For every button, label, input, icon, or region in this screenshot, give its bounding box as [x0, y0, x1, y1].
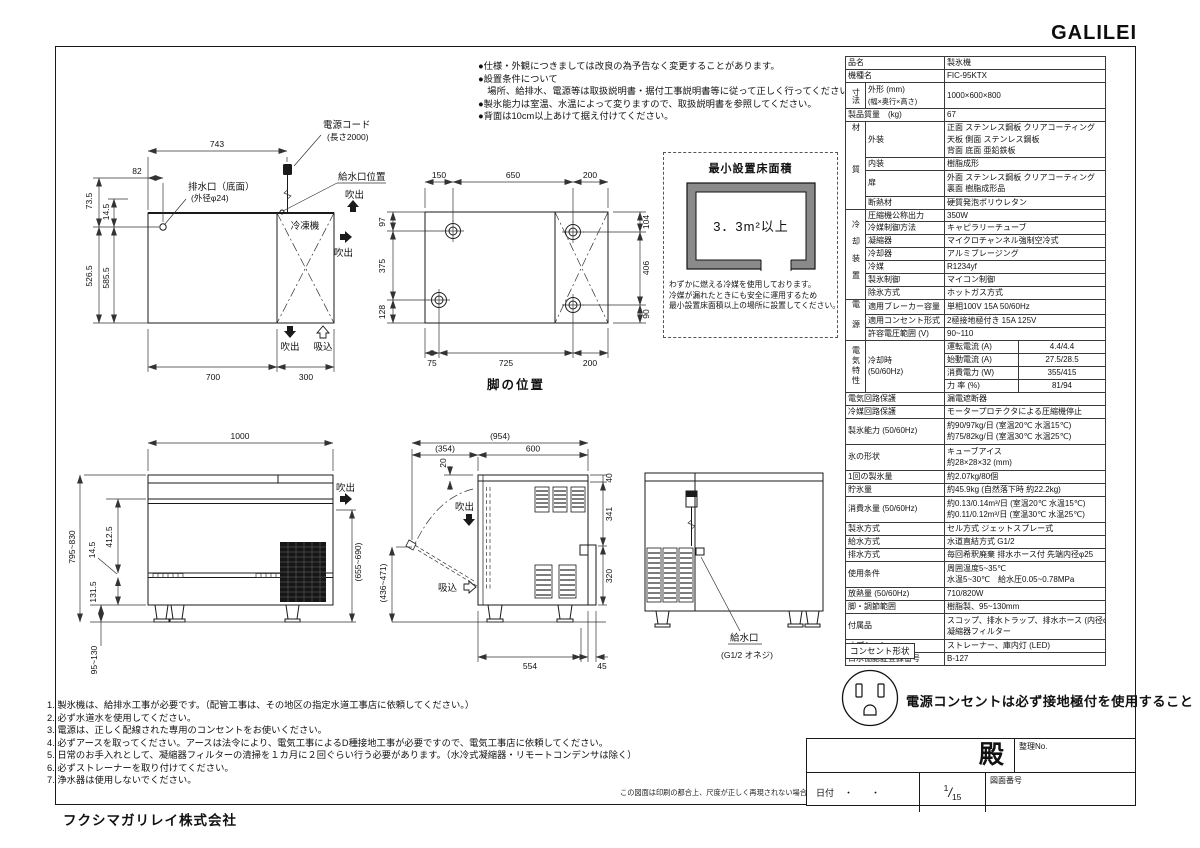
spec-row: 冷媒回路保護モータープロテクタによる圧縮機停止: [846, 405, 1106, 418]
dim-341: 341: [604, 507, 614, 521]
blow-label: 吹出: [280, 341, 299, 353]
inlet-position-label: 給水口位置: [338, 171, 386, 183]
dim-150: 150: [432, 170, 446, 180]
spec-value: B-127: [945, 652, 1106, 665]
spec-value: モータープロテクタによる圧縮機停止: [945, 405, 1106, 418]
note-line: ●仕様・外観につきましては改良の為予告なく変更することがあります。: [478, 60, 840, 73]
blow-label: 吹出: [336, 482, 355, 494]
spec-value: 樹脂製、95~130mm: [945, 600, 1106, 613]
dim-200-bottom: 200: [583, 358, 597, 368]
outlet-warning-text: 電源コンセントは必ず接地極付を使用すること: [906, 691, 1193, 710]
dim-554: 554: [523, 661, 537, 671]
dim-650: 650: [506, 170, 520, 180]
spec-value: 1000×600×800: [945, 83, 1106, 109]
drawing-side-view: (954) (354) 600 20 40 341 320 (436~471) …: [378, 431, 614, 671]
spec-sublabel: 始動電流 (A): [945, 353, 1019, 366]
drawing-leg-positions: 150 650 200 104 406 90 97 375 128 75 725…: [377, 170, 651, 392]
dim-300: 300: [299, 372, 313, 382]
spec-row: 放熱量 (50/60Hz)710/820W: [846, 587, 1106, 600]
spec-label: 品名: [846, 57, 945, 70]
spec-label: 適用ブレーカー容量: [866, 300, 945, 315]
spec-value: セル方式 ジェットスプレー式: [945, 522, 1106, 535]
spec-value: 単相100V 15A 50/60Hz: [945, 300, 1106, 315]
room-glyph: 3．3m²以上: [685, 181, 817, 273]
spec-value: マイコン制御: [945, 274, 1106, 287]
spec-value: 漏電遮断器: [945, 392, 1106, 405]
spec-value: 約0.13/0.14m³/日 (室温20℃ 水温15℃)約0.11/0.12m³…: [945, 496, 1106, 522]
date-cell: 日付 ・ ・: [807, 773, 920, 812]
spec-label: 凝縮器: [866, 235, 945, 248]
water-inlet-label: 給水口: [730, 632, 759, 644]
spec-value: 約45.9kg (自然落下時 約22.2kg): [945, 483, 1106, 496]
spec-row: 付属品スコップ、排水トラップ、排水ホース (内径φ25)凝縮器フィルター: [846, 613, 1106, 639]
dim-412-5: 412.5: [104, 526, 114, 548]
spec-value: ホットガス方式: [945, 287, 1106, 300]
spec-label: 1回の製氷量: [846, 470, 945, 483]
dim-436-471: (436~471): [378, 563, 388, 602]
dim-131-5: 131.5: [88, 581, 98, 603]
spec-label: 電気回路保護: [846, 392, 945, 405]
spec-sublabel: 運転電流 (A): [945, 341, 1019, 354]
note-line: 5. 日常のお手入れとして、凝縮器フィルターの清掃を１カ月に２回ぐらい行う必要が…: [47, 749, 807, 762]
spec-label: 氷の形状: [846, 444, 945, 470]
dim-14-5-front: 14.5: [87, 541, 97, 558]
note-line: 6. 必ずストレーナーを取り付けてください。: [47, 762, 807, 775]
spec-label: 扉: [866, 170, 945, 196]
spec-row: 脚・調節範囲樹脂製、95~130mm: [846, 600, 1106, 613]
drawing-top-view: 排水口（底面） (外径φ24) 電源コード (長さ2000) 給水口位置 冷凍機…: [84, 120, 386, 382]
note-line: 1. 製氷機は、給排水工事が必要です。（配管工事は、その地区の指定水道工事店に依…: [47, 699, 807, 712]
spec-value: 90~110: [945, 328, 1106, 341]
spec-row: 消費水量 (50/60Hz)約0.13/0.14m³/日 (室温20℃ 水温15…: [846, 496, 1106, 522]
brand-logo: GALILEI: [1038, 22, 1137, 45]
freezer-label: 冷凍機: [291, 220, 320, 232]
min-area-note: 最小設置床面積以上の場所に設置してください。: [669, 301, 832, 312]
spec-value: 水道直結方式 G1/2: [945, 535, 1106, 548]
dim-1000: 1000: [231, 431, 250, 441]
spec-row: 電気特性 冷却時(50/60Hz) 運転電流 (A)4.4/4.4: [846, 341, 1106, 354]
suction-label: 吸込: [438, 583, 458, 594]
blow-label: 吹出: [345, 189, 364, 201]
drain-label: 排水口（底面）: [188, 181, 255, 193]
dim-655-690: (655~690): [353, 542, 363, 581]
spec-row: 断熱材硬質発泡ポリウレタン: [846, 196, 1106, 209]
dim-375: 375: [377, 259, 387, 273]
dim-40: 40: [604, 473, 614, 483]
dim-97: 97: [377, 217, 387, 227]
min-floor-area-box: 最小設置床面積 3．3m²以上 わずかに燃える冷媒を使用しております。 冷媒が漏…: [663, 152, 838, 338]
spec-label: 外形 (mm)(幅×奥行×高さ): [866, 83, 945, 109]
spec-group: 寸法: [846, 83, 866, 109]
water-inlet-thread-label: (G1/2 オネジ): [721, 650, 773, 660]
spec-value: 外面 ステンレス鋼板 クリアコーティング裏面 樹脂成形品: [945, 170, 1106, 196]
blow-label: 吹出: [334, 247, 353, 259]
spec-label: 冷媒回路保護: [846, 405, 945, 418]
spec-row: 製氷方式セル方式 ジェットスプレー式: [846, 522, 1106, 535]
spec-value: R1234yf: [945, 261, 1106, 274]
spec-value: 毎回希釈廃棄 排水ホース付 先端内径φ25: [945, 548, 1106, 561]
min-area-note: わずかに燃える冷媒を使用しております。: [669, 280, 832, 291]
spec-row: 電気回路保護漏電遮断器: [846, 392, 1106, 405]
ref-no-cell: 整理No.: [1015, 739, 1135, 772]
scale-denominator: 15: [952, 792, 961, 802]
min-floor-area-title: 最小設置床面積: [664, 160, 837, 176]
spec-row: 使用条件周囲温度5~35℃水温5~30℃ 給水圧0.05~0.78MPa: [846, 561, 1106, 587]
drawing-front-view: 1000 795~830 412.5 14.5 131.5 95~130 吹出 …: [67, 431, 363, 674]
note-line: 3. 電源は、正しく配線された専用のコンセントをお使いください。: [47, 724, 807, 737]
drain-sub-label: (外径φ24): [191, 193, 229, 203]
dim-73-5: 73.5: [84, 192, 94, 209]
spec-label: 製氷能力 (50/60Hz): [846, 418, 945, 444]
spec-value: キャピラリーチューブ: [945, 222, 1106, 235]
dim-526-5: 526.5: [84, 265, 94, 287]
dim-354: (354): [435, 444, 455, 454]
spec-value: 4.4/4.4: [1019, 341, 1106, 354]
note-line: 場所、給排水、電源等は取扱説明書・据付工事説明書等に従って正しく行ってください。: [478, 85, 840, 98]
dim-height: 795~830: [67, 530, 77, 564]
spec-sublabel: 力 率 (%): [945, 379, 1019, 392]
spec-value: FIC-95KTX: [945, 70, 1106, 83]
spec-row: 許容電圧範囲 (V)90~110: [846, 328, 1106, 341]
spec-label: 脚・調節範囲: [846, 600, 945, 613]
spec-value: 樹脂成形: [945, 157, 1106, 170]
spec-label: 断熱材: [866, 196, 945, 209]
spec-value: 2極接地極付き 15A 125V: [945, 315, 1106, 328]
spec-row: 1回の製氷量約2.07kg/80個: [846, 470, 1106, 483]
date-label: 日付: [816, 786, 834, 799]
dim-leg-range: 95~130: [89, 645, 99, 674]
spec-row: 製品質量 (kg)67: [846, 109, 1106, 122]
spec-label: 適用コンセント形式: [866, 315, 945, 328]
title-block: 殿 整理No. 日付 ・ ・ 1/15 図面番号: [806, 738, 1136, 806]
note-line: 2. 必ず水道水を使用してください。: [47, 712, 807, 725]
spec-row: 寸法 外形 (mm)(幅×奥行×高さ) 1000×600×800: [846, 83, 1106, 109]
cord-sub-label: (長さ2000): [327, 132, 369, 142]
spec-value: 周囲温度5~35℃水温5~30℃ 給水圧0.05~0.78MPa: [945, 561, 1106, 587]
spec-value: 355/415: [1019, 366, 1106, 379]
spec-label: 消費水量 (50/60Hz): [846, 496, 945, 522]
spec-label: 機種名: [846, 70, 945, 83]
dim-320: 320: [604, 569, 614, 583]
spec-row: 貯氷量約45.9kg (自然落下時 約22.2kg): [846, 483, 1106, 496]
spec-value: 約90/97kg/日 (室温20℃ 水温15℃)約75/82kg/日 (室温30…: [945, 418, 1106, 444]
spec-label: 冷却時(50/60Hz): [866, 341, 945, 393]
company-name: フクシマガリレイ株式会社: [63, 809, 237, 829]
cord-label: 電源コード: [323, 120, 371, 131]
spec-value: スコップ、排水トラップ、排水ホース (内径φ25)凝縮器フィルター: [945, 613, 1106, 639]
spec-value: 81/94: [1019, 379, 1106, 392]
spec-value: マイクロチャンネル強制空冷式: [945, 235, 1106, 248]
dim-128: 128: [377, 305, 387, 319]
spec-row: 製氷制御マイコン制御: [846, 274, 1106, 287]
spec-value: ストレーナー、庫内灯 (LED): [945, 639, 1106, 652]
outlet-shape-label: コンセント形状: [845, 643, 915, 659]
spec-label: 製品質量 (kg): [846, 109, 945, 122]
min-floor-area-value: 3．3m²以上: [713, 219, 789, 234]
spec-row: 品名製氷機: [846, 57, 1106, 70]
dim-600: 600: [526, 444, 540, 454]
note-line: ●設置条件について: [478, 73, 840, 86]
dim-104: 104: [641, 215, 651, 229]
spec-value: 約2.07kg/80個: [945, 470, 1106, 483]
spec-label: 圧縮機公称出力: [866, 209, 945, 222]
note-line: 4. 必ずアースを取ってください。アースは法令により、電気工事によるD種接地工事…: [47, 737, 807, 750]
spec-row: 冷却装置 圧縮機公称出力350W: [846, 209, 1106, 222]
spec-row: 冷却器アルミブレージング: [846, 248, 1106, 261]
spec-value: 製氷機: [945, 57, 1106, 70]
spec-row: 冷媒制御方法キャピラリーチューブ: [846, 222, 1106, 235]
spec-label: 外装: [866, 122, 945, 158]
dim-200-top: 200: [583, 170, 597, 180]
spec-row: 冷媒R1234yf: [846, 261, 1106, 274]
dim-585-5: 585.5: [101, 267, 111, 289]
spec-label: 冷媒: [866, 261, 945, 274]
dim-45: 45: [597, 661, 607, 671]
spec-row: 材質 外装 正面 ステンレス鋼板 クリアコーティング天板 側面 ステンレス鋼板背…: [846, 122, 1106, 158]
spec-label: 製氷制御: [866, 274, 945, 287]
spec-label: 冷却器: [866, 248, 945, 261]
scale-cell: 1/15: [920, 773, 986, 812]
spec-label: 除氷方式: [866, 287, 945, 300]
spec-sublabel: 消費電力 (W): [945, 366, 1019, 379]
dim-743: 743: [210, 139, 224, 149]
spec-row: 給水方式水道直結方式 G1/2: [846, 535, 1106, 548]
spec-label: 付属品: [846, 613, 945, 639]
usage-notes: 1. 製氷機は、給排水工事が必要です。（配管工事は、その地区の指定水道工事店に依…: [47, 699, 807, 787]
spec-label: 使用条件: [846, 561, 945, 587]
spec-row: 製氷能力 (50/60Hz)約90/97kg/日 (室温20℃ 水温15℃)約7…: [846, 418, 1106, 444]
dim-90: 90: [641, 309, 651, 319]
dim-75: 75: [427, 358, 437, 368]
spec-label: 貯氷量: [846, 483, 945, 496]
spec-row: 扉外面 ステンレス鋼板 クリアコーティング裏面 樹脂成形品: [846, 170, 1106, 196]
note-line: 7. 浄水器は使用しないでください。: [47, 774, 807, 787]
min-area-note: 冷媒が漏れたときにも安全に運用するため: [669, 291, 832, 302]
spec-row: 電源 適用ブレーカー容量単相100V 15A 50/60Hz: [846, 300, 1106, 315]
spec-row: 内装樹脂成形: [846, 157, 1106, 170]
date-dots: ・ ・: [844, 786, 880, 799]
dim-82: 82: [132, 166, 142, 176]
spec-row: 機種名FIC-95KTX: [846, 70, 1106, 83]
spec-group: 冷却装置: [846, 209, 866, 300]
spec-group: 電源: [846, 300, 866, 341]
leg-view-title: 脚の位置: [487, 377, 545, 392]
spec-value: 硬質発泡ポリウレタン: [945, 196, 1106, 209]
spec-table: 品名製氷機 機種名FIC-95KTX 寸法 外形 (mm)(幅×奥行×高さ) 1…: [845, 56, 1106, 666]
spec-value: キューブアイス約28×28×32 (mm): [945, 444, 1106, 470]
spec-value: 正面 ステンレス鋼板 クリアコーティング天板 側面 ステンレス鋼板背面 底面 亜…: [945, 122, 1106, 158]
spec-group: 材質: [846, 122, 866, 210]
spec-label: 排水方式: [846, 548, 945, 561]
drawing-no-cell: 図面番号: [986, 773, 1135, 812]
suction-label: 吸込: [313, 342, 333, 353]
spec-label: 冷媒制御方法: [866, 222, 945, 235]
dim-954: (954): [490, 431, 510, 441]
spec-value: 67: [945, 109, 1106, 122]
dim-700: 700: [206, 372, 220, 382]
dim-725: 725: [499, 358, 513, 368]
spec-label: 内装: [866, 157, 945, 170]
addressee-cell: 殿: [807, 739, 1015, 772]
spec-row: 氷の形状キューブアイス約28×28×32 (mm): [846, 444, 1106, 470]
spec-label: 製氷方式: [846, 522, 945, 535]
spec-row: 排水方式毎回希釈廃棄 排水ホース付 先端内径φ25: [846, 548, 1106, 561]
spec-value: アルミブレージング: [945, 248, 1106, 261]
spec-label: 放熱量 (50/60Hz): [846, 587, 945, 600]
spec-row: 適用コンセント形式2極接地極付き 15A 125V: [846, 315, 1106, 328]
blow-label: 吹出: [455, 501, 474, 513]
spec-label: 給水方式: [846, 535, 945, 548]
spec-value: 27.5/28.5: [1019, 353, 1106, 366]
dim-20: 20: [438, 458, 448, 468]
spec-value: 710/820W: [945, 587, 1106, 600]
spec-row: 除氷方式ホットガス方式: [846, 287, 1106, 300]
spec-value: 350W: [945, 209, 1106, 222]
spec-row: 凝縮器マイクロチャンネル強制空冷式: [846, 235, 1106, 248]
spec-group: 電気特性: [846, 341, 866, 393]
dim-14-5: 14.5: [101, 203, 111, 220]
dim-406: 406: [641, 261, 651, 275]
outlet-plug-icon: [841, 668, 901, 730]
spec-label: 許容電圧範囲 (V): [866, 328, 945, 341]
drawing-rear-view: 給水口 (G1/2 オネジ): [645, 473, 823, 660]
